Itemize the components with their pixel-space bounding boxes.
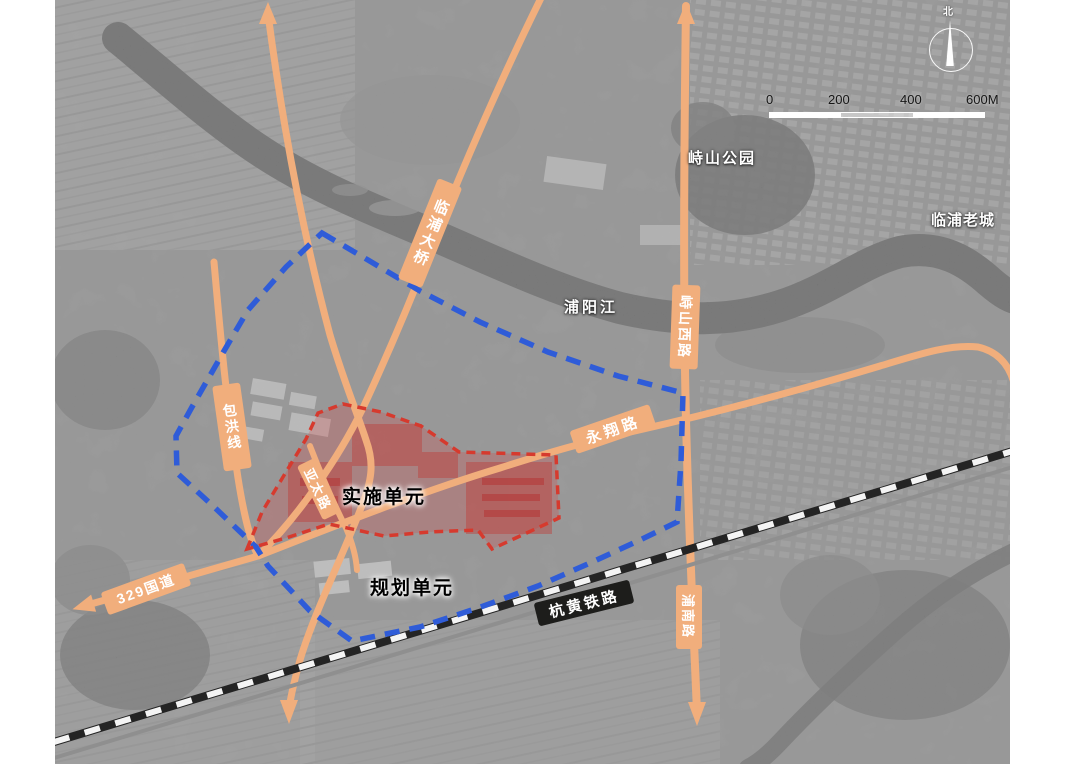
left-margin xyxy=(0,0,55,764)
scale-bar-segments xyxy=(769,112,985,118)
scale-tick-200: 200 xyxy=(828,92,850,107)
river-label: 浦阳江 xyxy=(564,296,618,317)
zhishan-west-road-label: 峙山西路 xyxy=(670,285,701,370)
scale-tick-400: 400 xyxy=(900,92,922,107)
scale-tick-0: 0 xyxy=(766,92,773,107)
old-town-label: 临浦老城 xyxy=(931,209,995,230)
satellite-planning-map: 峙山公园 临浦老城 浦阳江 实施单元 规划单元 临浦大桥 峙山西路 浦南路 包洪… xyxy=(0,0,1080,764)
scale-seg-1 xyxy=(769,112,841,118)
right-margin xyxy=(1010,0,1080,764)
scale-seg-2 xyxy=(841,112,913,118)
compass-north-label: 北 xyxy=(943,3,953,18)
planning-unit-label: 规划单元 xyxy=(370,573,454,600)
scale-seg-3 xyxy=(913,112,985,118)
park-label: 峙山公园 xyxy=(688,147,756,168)
scale-tick-600: 600M xyxy=(966,92,999,107)
implementation-unit-label: 实施单元 xyxy=(342,482,426,509)
punan-road-label: 浦南路 xyxy=(676,585,702,649)
